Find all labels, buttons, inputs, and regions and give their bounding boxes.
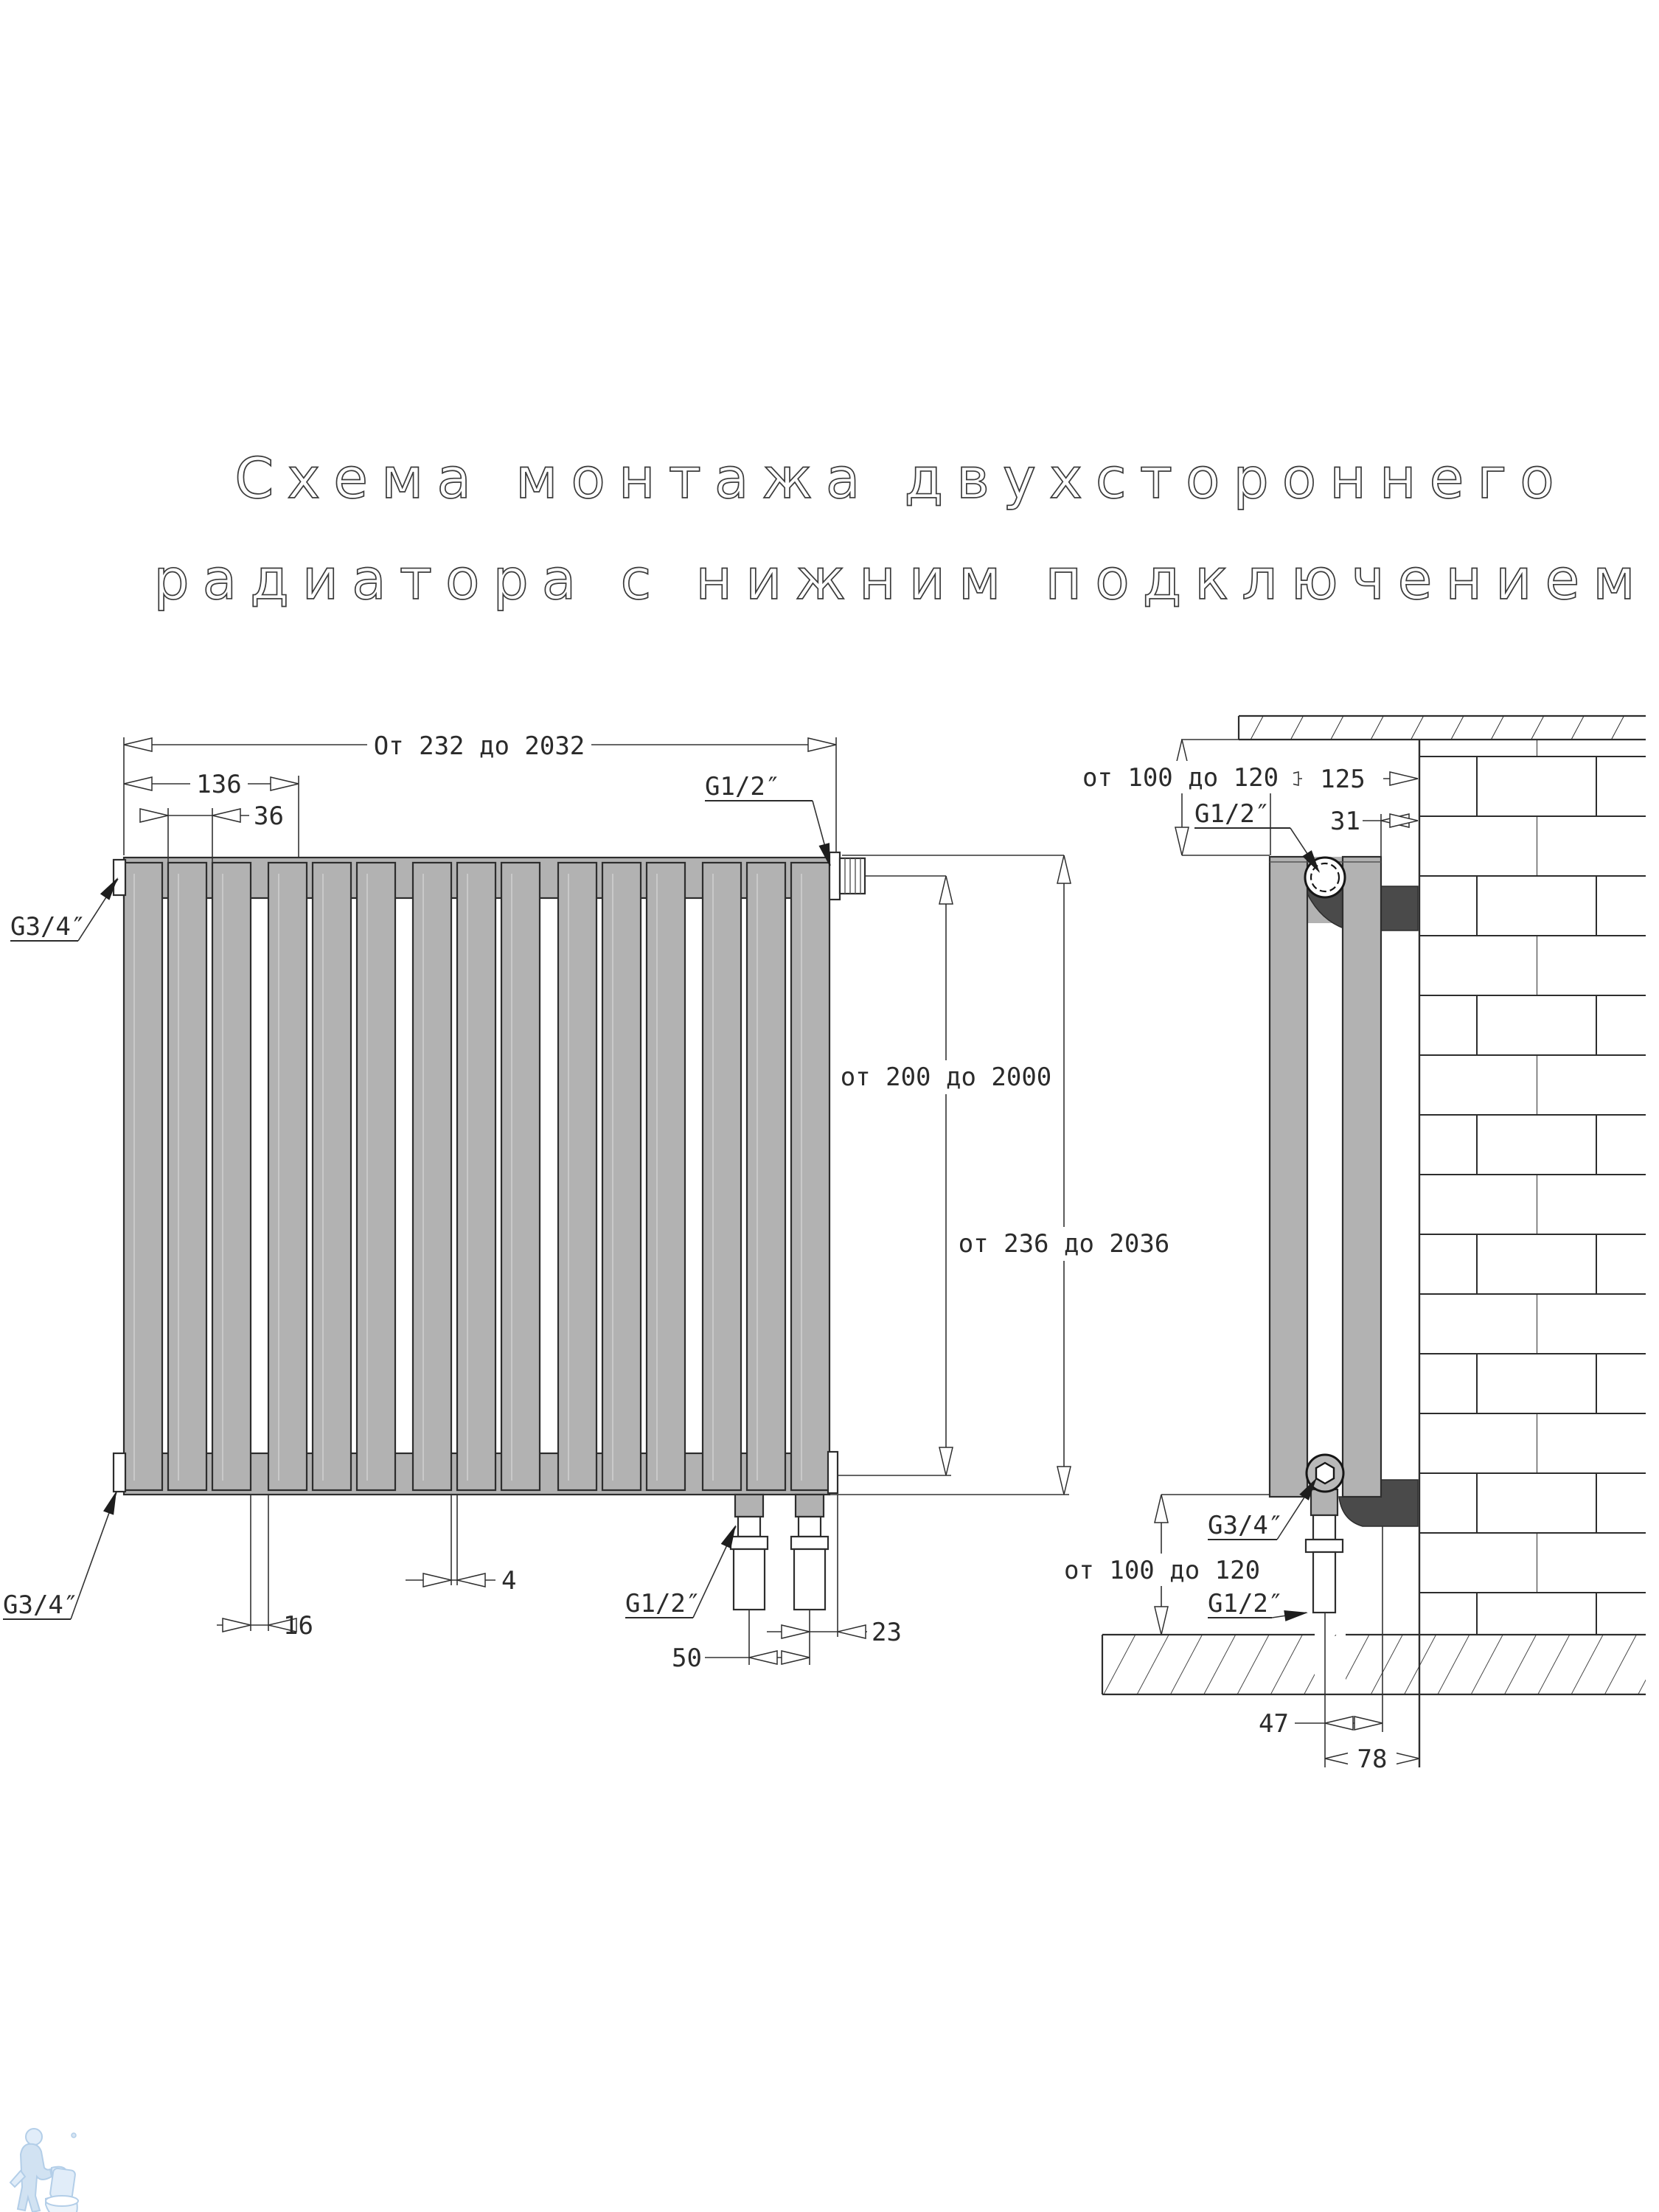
radiator-slat: [313, 863, 351, 1490]
thread-label-g12-top: G1/2″: [705, 772, 780, 801]
radiator-slat: [357, 863, 395, 1490]
dim-group-width: 136: [196, 770, 241, 799]
pipe: [1313, 1515, 1335, 1540]
radiator-bar-back: [1343, 857, 1381, 1497]
dim-pipe-to-bracket: 47: [1259, 1709, 1289, 1739]
pipe-stub: [735, 1495, 763, 1517]
thread-label-side-pipe: G1/2″: [1208, 1589, 1283, 1618]
radiator-slat: [703, 863, 741, 1490]
pipe: [734, 1549, 765, 1610]
collector-end-cap: [828, 1452, 838, 1493]
floor-pipe-opening: [1315, 1636, 1346, 1694]
title-block: Схема монтажа двухстороннего радиатора с…: [153, 445, 1648, 612]
valve-cap: [829, 852, 840, 900]
thread-label-side-union: G3/4″: [1208, 1511, 1283, 1540]
pipe: [794, 1549, 825, 1610]
thread-label-g34-top: G3/4″: [10, 912, 86, 942]
side-view: [1102, 716, 1646, 1767]
ceiling-hatch: [1239, 716, 1646, 740]
thread-label-g12-bottom: G1/2″: [625, 1589, 700, 1618]
radiator-bar-front: [1270, 857, 1307, 1497]
dim-slat-gap: 4: [501, 1566, 516, 1596]
radiator-slat: [647, 863, 685, 1490]
watermark-logo: [10, 2129, 78, 2212]
dim-slat-pitch: 36: [254, 801, 284, 831]
valve-body: [1311, 1489, 1338, 1515]
union-nut: [1306, 1540, 1343, 1552]
radiator-slat: [268, 863, 307, 1490]
dim-wall-gap: 31: [1330, 807, 1360, 836]
dim-pipe-to-edge: 23: [872, 1618, 902, 1647]
dim-pipe-to-wall: 78: [1357, 1745, 1388, 1774]
floor-hatch: [1102, 1635, 1646, 1694]
radiator-slat: [747, 863, 785, 1490]
radiator-slat: [413, 863, 451, 1490]
pipe: [738, 1517, 760, 1537]
pipe: [799, 1517, 821, 1537]
thread-label-g34-bottom: G3/4″: [3, 1590, 78, 1620]
dim-depth: 125: [1320, 765, 1365, 794]
thread-label-side-top: G1/2″: [1194, 799, 1270, 829]
title-line-2: радиатора с нижним подключением: [153, 546, 1648, 612]
front-view: [114, 852, 865, 1610]
radiator-slats: [124, 863, 829, 1490]
drawing-page: Схема монтажа двухстороннего радиатора с…: [0, 0, 1659, 2212]
pipe-stub: [796, 1495, 824, 1517]
leader-lines: [71, 801, 1324, 1621]
bottom-connection-pipes: [731, 1495, 828, 1610]
title-line-1: Схема монтажа двухстороннего: [234, 445, 1568, 511]
air-vent-knob: [840, 858, 865, 894]
radiator-slat: [558, 863, 597, 1490]
collector-end-cap: [114, 860, 125, 895]
dim-top-clearance: от 100 до 120: [1082, 763, 1279, 793]
radiator-slat: [212, 863, 251, 1490]
union-nut: [791, 1537, 828, 1549]
dim-total-height-range: от 236 до 2036: [959, 1229, 1170, 1259]
brick-pattern: [1419, 740, 1646, 1635]
pipe: [1313, 1552, 1335, 1613]
dim-group-gap: 16: [283, 1611, 313, 1641]
union-nut: [731, 1537, 768, 1549]
radiator-slat: [501, 863, 540, 1490]
radiator-slat: [457, 863, 495, 1490]
hex-plug: [1316, 1463, 1334, 1484]
radiator-slat: [791, 863, 829, 1490]
radiator-slat: [168, 863, 206, 1490]
radiator-slat: [602, 863, 641, 1490]
dim-bottom-clearance: от 100 до 120: [1064, 1556, 1260, 1585]
dim-slat-height-range: от 200 до 2000: [841, 1062, 1052, 1092]
side-bottom-pipe: [1306, 1515, 1343, 1613]
dim-width-range: От 232 до 2032: [374, 731, 585, 761]
dim-pipe-spacing: 50: [672, 1644, 702, 1673]
radiator-slat: [124, 863, 162, 1490]
collector-end-cap: [114, 1453, 125, 1492]
installation-diagram: Схема монтажа двухстороннего радиатора с…: [0, 0, 1659, 2212]
wall-bricks: [1419, 740, 1646, 1767]
